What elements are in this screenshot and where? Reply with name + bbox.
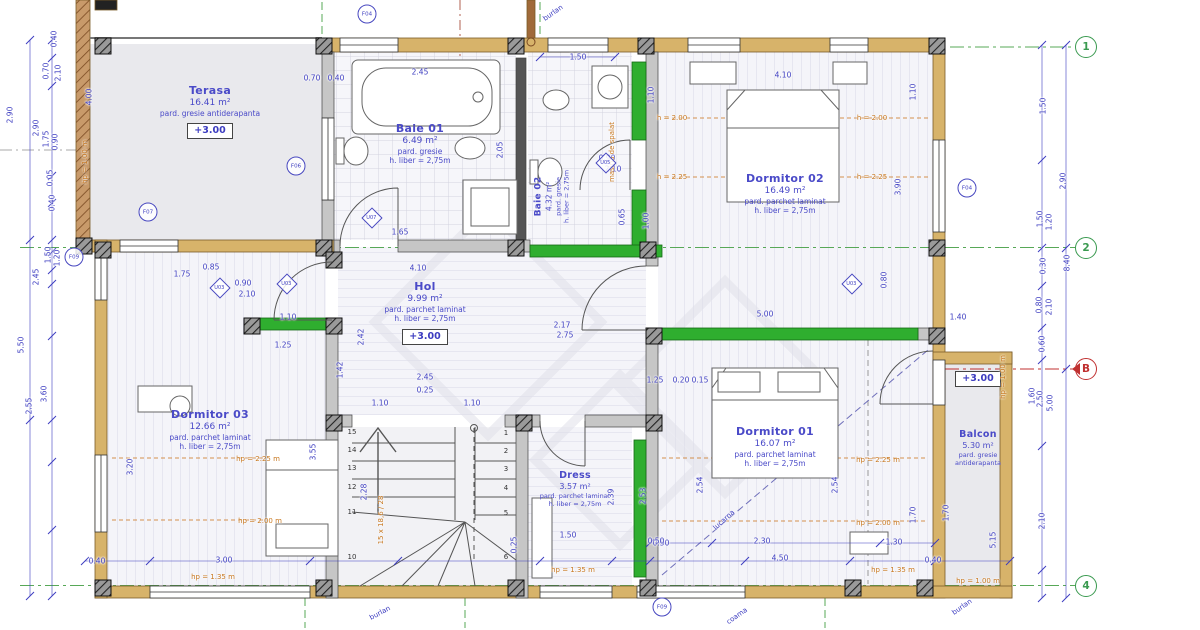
window-marker-f04: F04 — [358, 5, 377, 24]
door-marker-u03: U03 — [209, 277, 230, 298]
floor-plan: Terasa 16.41 m² pard. gresie antiderapan… — [0, 0, 1200, 630]
dimension-label: 2.53 — [639, 488, 648, 505]
dimension-label: 2.54 — [696, 477, 705, 494]
dimension-label: 2.45 — [417, 373, 434, 382]
dimension-label: 2.10 — [54, 65, 63, 82]
room-name: Dormitor 03 — [125, 408, 295, 422]
stair-step-number: 15 — [348, 428, 357, 436]
dimension-label: 1.20 — [53, 250, 62, 267]
dimension-label: 0.40 — [89, 557, 106, 566]
room-area: 12.66 m² — [125, 422, 295, 433]
stair-step-number: 2 — [504, 447, 508, 455]
room-label-dormitor-03: Dormitor 03 12.66 m² pard. parchet lamin… — [125, 408, 295, 452]
dimension-label: 2.45 — [412, 68, 429, 77]
room-area: 16.07 m² — [695, 439, 855, 450]
dimension-label: 0.05 — [46, 170, 55, 187]
dimension-label: 1.70 — [942, 505, 951, 522]
dimension-label: 2.10 — [239, 290, 256, 299]
dimension-label: 4.00 — [85, 89, 94, 106]
room-name: Hol — [345, 280, 505, 294]
room-name: Baie 02 — [534, 146, 545, 246]
dimension-label: 1.00 — [642, 213, 651, 230]
dimension-label: 0.80 — [1035, 297, 1044, 314]
room-height: h. liber = 2,75m — [695, 459, 855, 468]
dimension-label: 1.10 — [464, 399, 481, 408]
dimension-label: 5.00 — [757, 310, 774, 319]
annotation-label: hp = 2.00 m — [856, 519, 900, 527]
room-area: 16.49 m² — [705, 186, 865, 197]
door-marker-code: U05 — [601, 160, 611, 166]
annotation-label: hp = 2.25 m — [856, 456, 900, 464]
room-name: Dress — [520, 470, 630, 482]
dimension-label: 2.42 — [357, 329, 366, 346]
room-name: Balcon — [938, 429, 1018, 441]
stair-step-number: 13 — [348, 464, 357, 472]
window-marker-f04: F04 — [958, 179, 977, 198]
label-overlay: Terasa 16.41 m² pard. gresie antiderapan… — [0, 0, 1200, 630]
dimension-label: 2.90 — [6, 107, 15, 124]
dimension-label: 1.50 — [570, 53, 587, 62]
door-marker-code: U07 — [367, 215, 377, 221]
room-name: Terasa — [120, 84, 300, 98]
dimension-label: 0.65 — [618, 209, 627, 226]
dimension-label: 1.50 — [44, 247, 53, 264]
level-marker: +3.00 — [955, 371, 1000, 387]
dimension-label: 0.40 — [50, 31, 59, 48]
dimension-label: 1.65 — [392, 228, 409, 237]
dimension-label: 0.40 — [328, 74, 345, 83]
dimension-label: 0.90 — [51, 134, 60, 151]
annotation-label: masina de spalat — [608, 122, 616, 182]
dimension-label: 4.10 — [775, 71, 792, 80]
room-floor: pard. gresie — [345, 147, 495, 156]
dimension-label: 2.39 — [607, 489, 616, 506]
stair-step-number: 11 — [348, 508, 357, 516]
dimension-label: 1.40 — [950, 313, 967, 322]
room-floor: pard. parchet laminat — [695, 450, 855, 459]
dimension-label: 2.30 — [754, 537, 771, 546]
annotation-label: 15 x 18,6 / 28 — [377, 496, 385, 545]
dimension-label: 1.10 — [647, 87, 656, 104]
dimension-label: 2.10 — [1045, 299, 1054, 316]
dimension-label: 0.25 — [510, 537, 519, 554]
dimension-label: 2.75 — [557, 331, 574, 340]
room-label-dormitor-01: Dormitor 01 16.07 m² pard. parchet lamin… — [695, 425, 855, 469]
dimension-label: 0.50 — [648, 537, 665, 546]
dimension-label: 2.10 — [1038, 513, 1047, 530]
room-floor: pard. parchet laminat — [345, 305, 505, 314]
dimension-label: 1.50 — [560, 531, 577, 540]
room-name: Baie 01 — [345, 122, 495, 136]
room-height: h. liber = 2,75m — [705, 206, 865, 215]
stair-step-number: 14 — [348, 446, 357, 454]
annotation-label: burlan — [542, 3, 565, 22]
dimension-label: 1.30 — [886, 538, 903, 547]
room-floor: pard. gresie — [554, 146, 562, 246]
room-area: 6.49 m² — [345, 136, 495, 147]
dimension-label: 1.10 — [280, 313, 297, 322]
dimension-label: 4.50 — [772, 554, 789, 563]
dimension-label: 0.80 — [880, 272, 889, 289]
window-marker-f07: F07 — [139, 203, 158, 222]
dimension-label: 2.50 — [1036, 391, 1045, 408]
dimension-label: 1.50 — [1036, 211, 1045, 228]
stair-step-number: 3 — [504, 465, 508, 473]
dimension-label: 1.75 — [174, 270, 191, 279]
door-marker-u03: U03 — [276, 273, 297, 294]
room-area: 9.99 m² — [345, 294, 505, 305]
dimension-label: 2.90 — [32, 120, 41, 137]
dimension-label: 1.50 — [1039, 98, 1048, 115]
dimension-label: 0.20 — [673, 376, 690, 385]
dimension-label: 2.28 — [360, 484, 369, 501]
dimension-label: 1.25 — [275, 341, 292, 350]
stair-step-number: 1 — [504, 429, 508, 437]
door-marker-u07: U07 — [361, 207, 382, 228]
room-label-hol: Hol 9.99 m² pard. parchet laminat h. lib… — [345, 280, 505, 345]
annotation-label: h = 2.25 — [857, 173, 887, 181]
grid-marker-4: 4 — [1075, 575, 1097, 597]
stair-step-number: 12 — [348, 483, 357, 491]
dimension-label: 3.00 — [216, 556, 233, 565]
stair-step-number: 6 — [504, 553, 508, 561]
room-floor: pard. parchet laminat — [705, 197, 865, 206]
dimension-label: 0.40 — [925, 556, 942, 565]
annotation-label: hp = 2.00 m — [238, 517, 282, 525]
dimension-label: 3.60 — [40, 386, 49, 403]
room-height: h. liber = 2,75m — [562, 146, 570, 246]
annotation-label: lucarna — [712, 508, 737, 531]
door-marker-code: U03 — [282, 281, 292, 287]
dimension-label: 0.60 — [1038, 336, 1047, 353]
dimension-label: 1.10 — [372, 399, 389, 408]
annotation-label: hp = 1.00 m — [81, 140, 89, 184]
dimension-label: 2.45 — [32, 269, 41, 286]
room-floor: pard. gresie — [938, 451, 1018, 459]
level-marker: +3.00 — [187, 123, 232, 139]
dimension-label: 8.40 — [1063, 255, 1072, 272]
dimension-label: 5.50 — [17, 337, 26, 354]
room-area: 16.41 m² — [120, 98, 300, 109]
annotation-label: h = 2.25 — [657, 173, 687, 181]
door-marker-u03: U03 — [841, 273, 862, 294]
stair-step-number: 10 — [348, 553, 357, 561]
window-marker-f06: F06 — [287, 157, 306, 176]
annotation-label: hp = 1.00 m — [956, 577, 1000, 585]
annotation-label: hp = 1.00 m — [999, 355, 1007, 399]
dimension-label: 2.17 — [554, 321, 571, 330]
dimension-label: 1.42 — [336, 362, 345, 379]
dimension-label: 1.70 — [909, 507, 918, 524]
dimension-label: 3.20 — [126, 459, 135, 476]
room-height: h. liber = 2,75m — [345, 156, 495, 165]
dimension-label: 0.85 — [203, 263, 220, 272]
room-name: Dormitor 01 — [695, 425, 855, 439]
grid-marker-2: 2 — [1075, 237, 1097, 259]
annotation-label: burlan — [951, 597, 974, 616]
dimension-label: 3.55 — [309, 444, 318, 461]
dimension-label: 2.05 — [496, 142, 505, 159]
dimension-label: 1.75 — [42, 131, 51, 148]
dimension-label: 1.10 — [909, 84, 918, 101]
window-marker-f09: F09 — [65, 248, 84, 267]
dimension-label: 0.40 — [48, 195, 57, 212]
stair-step-number: 5 — [504, 509, 508, 517]
dimension-label: 3.90 — [894, 179, 903, 196]
dimension-label: 2.55 — [25, 398, 34, 415]
dimension-label: 5.15 — [989, 532, 998, 549]
annotation-label: burlan — [368, 604, 392, 622]
grid-marker-1: 1 — [1075, 36, 1097, 58]
dimension-label: 2.90 — [1059, 173, 1068, 190]
dimension-label: 1.25 — [647, 376, 664, 385]
window-marker-f09: F09 — [653, 598, 672, 617]
room-floor: pard. gresie antiderapanta — [120, 109, 300, 118]
door-marker-code: U03 — [215, 285, 225, 291]
annotation-label: hp = 1.35 m — [551, 566, 595, 574]
annotation-label: coama — [725, 606, 749, 626]
room-area: 5.30 m² — [938, 441, 1018, 451]
dimension-label: 5.00 — [1046, 395, 1055, 412]
room-name: Dormitor 02 — [705, 172, 865, 186]
room-area: 4.32 m² — [545, 146, 554, 246]
dimension-label: 2.54 — [831, 477, 840, 494]
annotation-label: hp = 1.35 m — [191, 573, 235, 581]
door-marker-code: U03 — [847, 281, 857, 287]
room-floor: pard. parchet laminat — [125, 433, 295, 442]
room-floor: antiderapanta — [938, 459, 1018, 467]
room-label-baie-02: Baie 02 4.32 m² pard. gresie h. liber = … — [534, 146, 571, 246]
dimension-label: 1.20 — [1045, 214, 1054, 231]
dimension-label: 4.10 — [410, 264, 427, 273]
dimension-label: 0.15 — [692, 376, 709, 385]
dimension-label: 0.70 — [304, 74, 321, 83]
dimension-label: 0.25 — [417, 386, 434, 395]
room-label-terasa: Terasa 16.41 m² pard. gresie antiderapan… — [120, 84, 300, 139]
dimension-label: 0.70 — [42, 63, 51, 80]
annotation-label: h = 2.00 — [857, 114, 887, 122]
room-label-baie-01: Baie 01 6.49 m² pard. gresie h. liber = … — [345, 122, 495, 166]
room-label-dormitor-02: Dormitor 02 16.49 m² pard. parchet lamin… — [705, 172, 865, 216]
room-height: h. liber = 2,75m — [345, 314, 505, 323]
dimension-label: 0.30 — [1039, 258, 1048, 275]
annotation-label: hp = 2.25 m — [236, 455, 280, 463]
annotation-label: hp = 1.35 m — [871, 566, 915, 574]
stair-step-number: 4 — [504, 484, 508, 492]
room-height: h. liber = 2,75m — [125, 442, 295, 451]
level-marker: +3.00 — [402, 329, 447, 345]
grid-marker-b: B — [1075, 358, 1097, 380]
annotation-label: h = 2.00 — [657, 114, 687, 122]
dimension-label: 0.90 — [235, 279, 252, 288]
